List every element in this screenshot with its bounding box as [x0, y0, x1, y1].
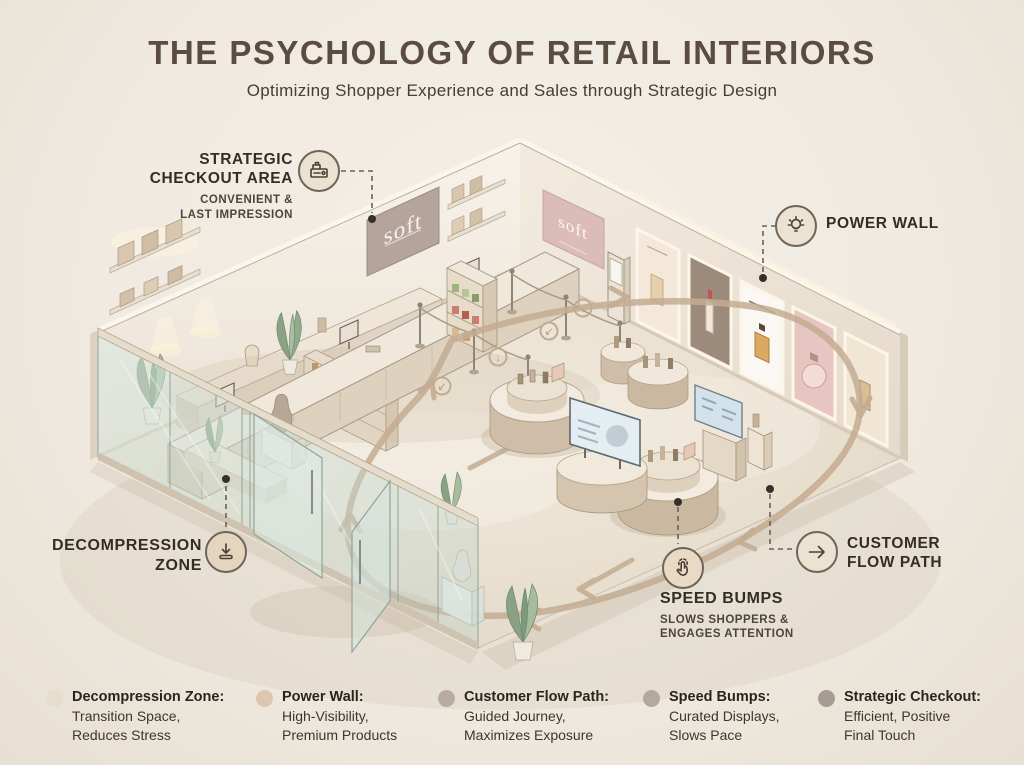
legend-item-strategic-checkout: Strategic Checkout: Efficient, Positive … — [818, 688, 981, 745]
legend-dot — [438, 690, 455, 707]
callout-customer-flow-path: CUSTOMER FLOW PATH — [847, 535, 942, 573]
legend-dot — [256, 690, 273, 707]
legend-item-decompression: Decompression Zone: Transition Space, Re… — [46, 688, 224, 745]
legend-dot — [818, 690, 835, 707]
page-subtitle: Optimizing Shopper Experience and Sales … — [0, 81, 1024, 101]
callout-sub-line: LAST IMPRESSION — [180, 209, 293, 221]
legend-desc: Efficient, Positive — [844, 708, 950, 724]
svg-text:↙: ↙ — [437, 381, 446, 393]
lightbulb-icon — [775, 205, 817, 247]
legend-desc: Slows Pace — [669, 727, 742, 743]
svg-text:↙: ↙ — [544, 326, 553, 338]
callout-title-line: FLOW PATH — [847, 554, 942, 571]
legend-item-power-wall: Power Wall: High-Visibility, Premium Pro… — [256, 688, 397, 745]
callout-sub-line: CONVENIENT & — [200, 194, 293, 206]
legend-desc: High-Visibility, — [282, 708, 369, 724]
callout-power-wall: POWER WALL — [826, 215, 939, 234]
entry-arrow-icon — [205, 531, 247, 573]
callout-speed-bumps: SPEED BUMPS SLOWS SHOPPERS & ENGAGES ATT… — [660, 589, 794, 642]
legend-label: Customer Flow Path: — [464, 689, 609, 705]
callout-title-line: POWER WALL — [826, 215, 939, 234]
legend-desc: Reduces Stress — [72, 727, 171, 743]
callout-strategic-checkout: STRATEGIC CHECKOUT AREA CONVENIENT & LAS… — [128, 151, 293, 223]
page-title: THE PSYCHOLOGY OF RETAIL INTERIORS — [0, 34, 1024, 72]
legend-item-speed-bumps: Speed Bumps: Curated Displays, Slows Pac… — [643, 688, 780, 745]
store-illustration: soft soft — [0, 0, 1024, 765]
svg-text:↓: ↓ — [495, 352, 501, 364]
callout-title-line: STRATEGIC — [199, 151, 293, 168]
callout-sub-line: ENGAGES ATTENTION — [660, 628, 794, 640]
legend-item-flow-path: Customer Flow Path: Guided Journey, Maxi… — [438, 688, 609, 745]
arrow-right-icon — [796, 531, 838, 573]
callout-title-line: DECOMPRESSION — [52, 537, 202, 554]
legend-desc: Premium Products — [282, 727, 397, 743]
legend-label: Strategic Checkout: — [844, 689, 981, 705]
infographic-retail-psychology: soft soft — [0, 0, 1024, 765]
legend-dot — [643, 690, 660, 707]
legend-dot — [46, 690, 63, 707]
legend-desc: Curated Displays, — [669, 708, 780, 724]
callout-title-line: ZONE — [155, 557, 202, 574]
tap-hand-icon — [662, 547, 704, 589]
callout-sub-line: SLOWS SHOPPERS & — [660, 614, 789, 626]
callout-title-line: CUSTOMER — [847, 535, 940, 552]
cash-register-icon — [298, 150, 340, 192]
legend-desc: Maximizes Exposure — [464, 727, 593, 743]
legend-label: Power Wall: — [282, 689, 364, 705]
header: THE PSYCHOLOGY OF RETAIL INTERIORS Optim… — [0, 34, 1024, 101]
legend-desc: Transition Space, — [72, 708, 180, 724]
callout-decompression-zone: DECOMPRESSION ZONE — [30, 536, 202, 575]
callout-title-line: CHECKOUT AREA — [150, 170, 293, 187]
callout-title-line: SPEED BUMPS — [660, 589, 794, 609]
legend-desc: Final Touch — [844, 727, 915, 743]
legend-desc: Guided Journey, — [464, 708, 566, 724]
legend-label: Decompression Zone: — [72, 689, 224, 705]
legend-label: Speed Bumps: — [669, 689, 771, 705]
